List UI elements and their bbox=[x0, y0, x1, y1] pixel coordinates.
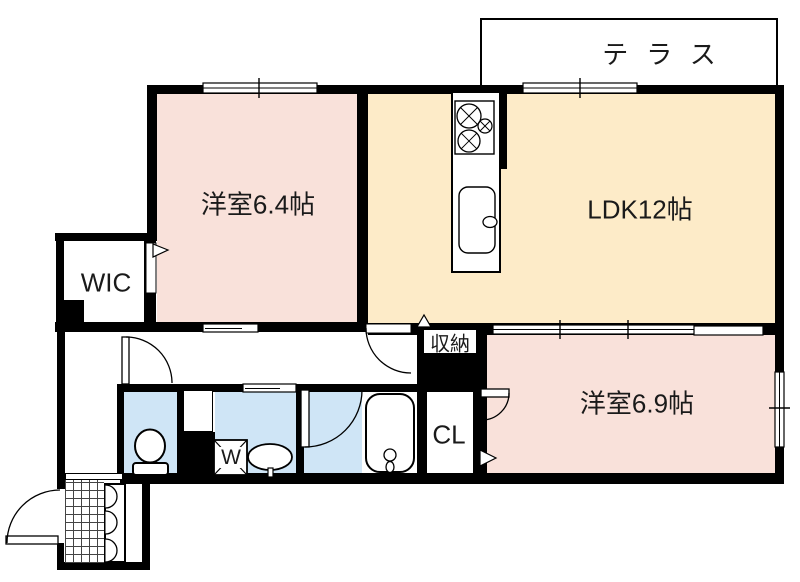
bathtub-icon bbox=[366, 394, 414, 473]
doorway-caret-storage bbox=[417, 315, 431, 327]
label-storage: 収納 bbox=[430, 328, 470, 357]
door-leaf-closet bbox=[481, 389, 509, 397]
opening-bedroom2-top bbox=[694, 326, 763, 335]
door-leaf-entrance bbox=[6, 536, 58, 544]
sliding-door-washroom bbox=[243, 384, 296, 392]
label-wic: WIC bbox=[81, 268, 132, 299]
door-leaf-toilet bbox=[122, 337, 129, 384]
floor-plan: テラス 洋室6.4帖 LDK12帖 WIC 収納 洋室6.9帖 CL W bbox=[0, 0, 800, 582]
sliding-door-ldk-bedroom2 bbox=[493, 320, 697, 339]
doorway-pennant-wic bbox=[153, 244, 168, 257]
door-arc-bathroom bbox=[305, 390, 362, 447]
label-terrace: テラス bbox=[602, 35, 733, 72]
label-washer: W bbox=[221, 446, 241, 470]
kitchen-counter bbox=[452, 92, 500, 272]
sliding-door-bedroom1 bbox=[203, 324, 258, 332]
washbasin-icon bbox=[248, 444, 292, 477]
toilet-icon bbox=[133, 430, 168, 476]
label-closet: CL bbox=[432, 420, 465, 451]
label-bedroom2: 洋室6.9帖 bbox=[580, 384, 694, 421]
door-arc-ldk bbox=[366, 328, 411, 373]
window-bedroom1-top bbox=[203, 78, 317, 98]
doorway-pennant-bedroom2 bbox=[480, 450, 496, 466]
opening-ldk-door bbox=[366, 324, 411, 333]
label-bedroom1: 洋室6.4帖 bbox=[201, 185, 315, 222]
shoe-cabinet-door-arcs bbox=[106, 485, 118, 562]
door-leaf-bathroom bbox=[301, 390, 309, 447]
window-bedroom2-right bbox=[769, 372, 790, 447]
door-arc-entrance bbox=[7, 490, 60, 543]
window-ldk-terrace bbox=[523, 78, 637, 98]
opening-entrance bbox=[57, 489, 65, 543]
label-ldk: LDK12帖 bbox=[587, 190, 693, 227]
kitchen-sink-icon bbox=[459, 187, 497, 253]
door-arc-toilet bbox=[126, 337, 172, 383]
